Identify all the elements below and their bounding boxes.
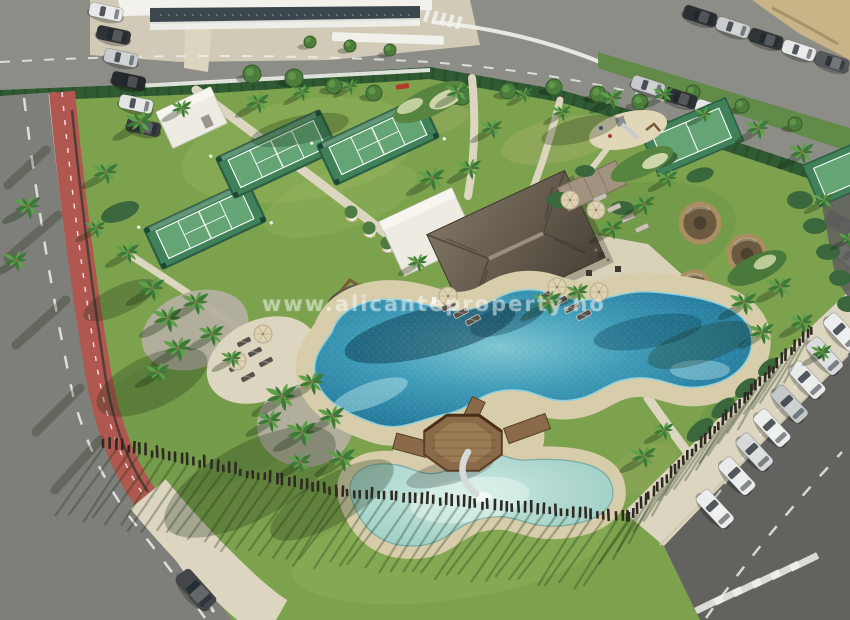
pool-sign [432,297,436,304]
aerial-resort-photo: www.alicanteproperty.no [0,0,850,620]
